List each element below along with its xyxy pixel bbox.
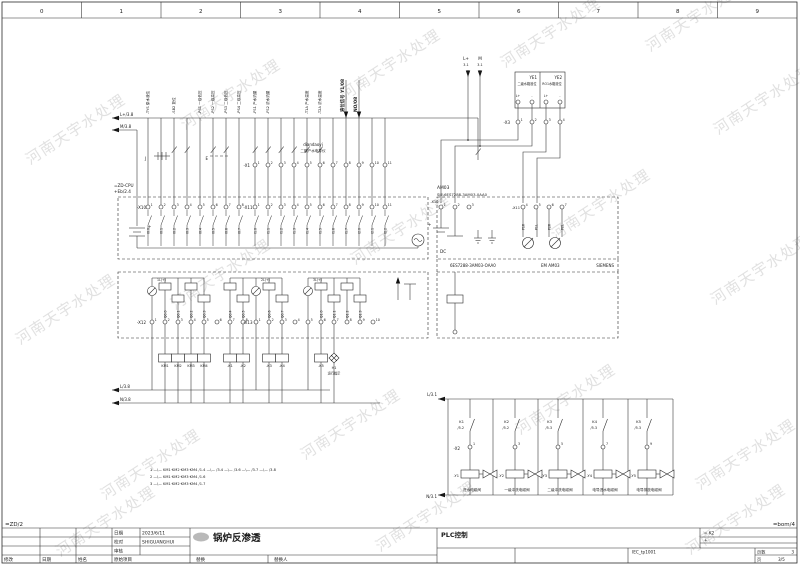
terminal-circle xyxy=(306,320,310,324)
watermark-text: 河南天宇水处理 xyxy=(497,0,604,71)
am03-caption-model: EM AM03 xyxy=(541,263,560,268)
terminal-number: 9 xyxy=(650,442,652,446)
terminal-circle xyxy=(318,163,322,167)
am03-part-number: SIE.6ES7288-3AM03-0AA0 xyxy=(437,192,488,197)
terminal-circle xyxy=(279,163,283,167)
page-label: 页 xyxy=(757,557,761,563)
note-line: 1 —\— KM1·KM2·KM3·KM4 /1.4 —\— /3.4 —\— … xyxy=(150,468,277,472)
coil-tag: -K5 xyxy=(318,364,324,368)
terminal-number: 3 xyxy=(285,318,287,322)
vertical-label: I0.1 xyxy=(160,228,164,234)
terminal-circle xyxy=(319,320,323,324)
vertical-label: -PS1 一级低压 xyxy=(197,90,202,114)
terminal-strip-x3: 1234 xyxy=(516,118,565,124)
bus-bl-n-label: N/3.8 xyxy=(120,397,131,402)
terminal-circle xyxy=(558,120,562,124)
vertical-label: -PS2 一级高压 xyxy=(210,90,215,114)
terminal-circle xyxy=(383,163,387,167)
terminal-number: 1 xyxy=(259,318,261,322)
terminal-circle xyxy=(467,205,471,209)
contact-ref: /5.3 xyxy=(545,426,552,430)
terminal-circle xyxy=(253,163,257,167)
terminal-number: 4 xyxy=(190,203,192,207)
terminal-number: 4 xyxy=(194,318,196,322)
k12-coils: -K1-K2 xyxy=(224,354,250,368)
vertical-label: -T2A 浓水温度 xyxy=(317,90,322,114)
terminal-circle xyxy=(371,320,375,324)
cpu-input-signals-2: I1.0I1.1I1.2I1.3I1.4I1.5I1.6I1.7I2.0I2.1… xyxy=(254,228,388,234)
terminal-circle xyxy=(198,205,202,209)
component-e-label: E xyxy=(205,156,208,161)
coil-symbol xyxy=(315,354,328,362)
drawing-title: 锅炉反渗透 xyxy=(213,532,261,544)
terminal-number: 5 xyxy=(310,203,312,207)
watermark-layer: 河南天宇水处理 河南天宇水处理 河南天宇水处理 河南天宇水处理 河南天宇水处理 … xyxy=(12,0,800,560)
terminal-circle xyxy=(560,205,564,209)
terminal-number: 5 xyxy=(311,318,313,322)
watermark-text: 河南天宇水处理 xyxy=(710,60,800,138)
vertical-label: I0.4 xyxy=(199,228,203,234)
vertical-label: -PS4 二级高压 xyxy=(236,90,241,114)
terminal-number: 2 xyxy=(271,161,273,165)
signal-ref-1: 液位信号 Y1/08 xyxy=(339,79,346,112)
vertical-label: -PS3 二级低压 xyxy=(223,90,228,114)
valve-tag: -Y2 xyxy=(499,474,504,478)
common-3l: 3L(+) xyxy=(313,278,322,282)
ground-symbols xyxy=(474,238,496,243)
terminal-circle xyxy=(357,163,361,167)
terminal-circle xyxy=(172,205,176,209)
watermark-text: 河南天宇水处理 xyxy=(22,90,129,168)
coil-tag: KM3 xyxy=(187,364,194,368)
feed-m-ref: 3.1 xyxy=(477,63,482,67)
cpu-ref: =ZD-CPU xyxy=(114,183,134,188)
terminal-number: 8 xyxy=(349,203,351,207)
terminal-strip-x11-tag: -X11 xyxy=(243,205,253,210)
terminal-number: 6 xyxy=(324,318,326,322)
signal-ref-2: NO/08 xyxy=(353,97,359,112)
terminal-circle xyxy=(224,205,228,209)
watermark-text: 河南天宇水处理 xyxy=(12,270,119,348)
row-label: 2 xyxy=(199,9,203,15)
output-box: 1L(+) 2L(+) 3L(+) Q0.0 xyxy=(118,272,428,338)
contact-tag: K2 xyxy=(504,419,509,424)
terminal-number: 8 xyxy=(349,161,351,165)
vertical-label: -T1A 产水温度 xyxy=(304,90,309,114)
valve-tag: -Y4 xyxy=(587,474,593,478)
terminal-number: 6 xyxy=(216,203,218,207)
terminal-number: 5 xyxy=(539,203,541,207)
terminal-circle xyxy=(547,205,551,209)
terminal-number: 6 xyxy=(220,318,222,322)
row-label: 0 xyxy=(40,9,44,15)
cross-reference-notes: 1 —\— KM1·KM2·KM3·KM4 /1.4 —\— /3.4 —\— … xyxy=(150,468,277,486)
vertical-label: I0.3 xyxy=(186,228,190,234)
terminal-circle xyxy=(534,205,538,209)
date-label: 日期 xyxy=(114,531,123,537)
km-coils: KM1KM2KM3KM4 xyxy=(159,354,211,368)
terminal-circle xyxy=(211,205,215,209)
terminal-strip-x1-tag: -X1 xyxy=(243,163,250,168)
coil-tag: KM1 xyxy=(161,364,168,368)
vertical-label: -FS1 产水流量 xyxy=(252,90,257,114)
terminal-number: 1 xyxy=(155,318,157,322)
bus-l-label: L+/3.8 xyxy=(120,112,134,117)
terminal-circle xyxy=(253,205,257,209)
h1-tag: H1 xyxy=(332,366,337,370)
row-label: 6 xyxy=(517,9,521,15)
terminal-circle xyxy=(318,205,322,209)
terminal-circle xyxy=(358,320,362,324)
battery-plus: + xyxy=(148,224,151,229)
terminal-circle xyxy=(163,320,167,324)
terminal-number: 3 xyxy=(284,203,286,207)
terminal-number: 1 xyxy=(444,203,446,207)
terminal-number: 11 xyxy=(388,161,392,165)
coil-symbol xyxy=(263,354,276,362)
terminal-number: 3 xyxy=(549,118,551,122)
terminal-number: 2 xyxy=(458,203,460,207)
terminal-number: 9 xyxy=(363,318,365,322)
valve-tag: -Y3 xyxy=(542,474,547,478)
terminal-number: 1 xyxy=(258,161,260,165)
valve-desc: 电导排放电磁阀 xyxy=(636,487,662,492)
terminal-circle xyxy=(305,205,309,209)
replace-by-label: 替换人 xyxy=(274,556,288,563)
am03-plus: + xyxy=(428,222,431,227)
coil-tag: KM2 xyxy=(174,364,181,368)
vertical-label: I1.0 xyxy=(254,228,258,234)
vertical-label: I2.1 xyxy=(371,228,375,234)
ye1-desc: 二级水箱液位 xyxy=(517,81,537,86)
common-1l: 1L(+) xyxy=(157,278,166,282)
cpu-location: +Eb/2.4 xyxy=(114,189,131,194)
terminal-number: 6 xyxy=(323,161,325,165)
terminal-number: 1 xyxy=(258,203,260,207)
contact-tag: K1 xyxy=(459,419,464,424)
instrument-circuit: L+ 3.1 M 3.1 YE1 二级水箱液位 YE2 RO1水箱液位 L+ -… xyxy=(441,56,565,203)
pages-value: 3 xyxy=(791,550,794,555)
vertical-label: P1L xyxy=(535,224,539,230)
terminal-strip-x10: 12345678 xyxy=(146,203,244,209)
k5-coil: -K5 xyxy=(315,354,328,368)
vertical-label: P2L xyxy=(561,224,565,230)
row-label: 7 xyxy=(596,9,600,15)
component-j-label: J xyxy=(144,156,146,161)
terminal-circle xyxy=(279,205,283,209)
terminal-circle xyxy=(345,320,349,324)
terminal-number: 4 xyxy=(297,161,299,165)
audit-label: 审核 xyxy=(114,548,123,555)
vertical-label: -TYS 原水液位 xyxy=(145,90,150,114)
contact-ref: /5.2 xyxy=(502,426,509,430)
vertical-label: I1.5 xyxy=(319,228,323,234)
row-label: 9 xyxy=(755,9,759,15)
terminal-strip-x2-tag: -X2 xyxy=(453,446,460,451)
modify-label: 修改 xyxy=(4,556,13,563)
valve-desc: 二级冲洗电磁阀 xyxy=(547,487,573,492)
row-label: 3 xyxy=(278,9,282,15)
coil-tag: -K2 xyxy=(240,364,246,368)
terminal-number: 3 xyxy=(284,161,286,165)
note-line: 2 —\— KM1·KM2·KM3·KM4 /1.6 xyxy=(150,475,206,479)
terminal-number: 7 xyxy=(336,161,338,165)
terminal-number: 1 xyxy=(521,118,523,122)
coil-symbol xyxy=(185,354,198,362)
replace-label: 替换 xyxy=(196,556,205,563)
terminal-number: 5 xyxy=(310,161,312,165)
terminal-number: 6 xyxy=(552,203,554,207)
terminal-strip-x13-tag: -X13 xyxy=(243,320,253,325)
terminal-number: 5 xyxy=(203,203,205,207)
terminal-number: 2 xyxy=(271,203,273,207)
name-label: 姓名 xyxy=(78,556,87,563)
terminal-number: 5 xyxy=(207,318,209,322)
conductivity-meter-name: diandaoyi xyxy=(303,142,323,147)
terminal-number: 1 xyxy=(473,442,475,446)
vertical-label: I1.4 xyxy=(306,228,310,234)
row-label: 8 xyxy=(676,9,680,15)
terminal-circle xyxy=(292,205,296,209)
terminal-circle xyxy=(237,205,241,209)
terminal-circle xyxy=(292,163,296,167)
drawing-subtitle: PLC控制 xyxy=(441,530,468,539)
coil-symbol xyxy=(159,354,172,362)
terminal-number: 8 xyxy=(350,318,352,322)
terminal-number: 3 xyxy=(518,442,520,446)
valve-desc: 电导进水电磁阀 xyxy=(592,487,618,492)
valve-branch: K4 /5.3 7 -Y4 电导进水电磁阀 xyxy=(587,399,630,495)
terminal-circle xyxy=(332,320,336,324)
contact-tag: K5 xyxy=(636,419,641,424)
k34-coils: -K3-K4 xyxy=(263,354,289,368)
pages-label: 页数 xyxy=(757,549,766,556)
terminal-circle xyxy=(439,205,443,209)
watermark-text: 河南天宇水处理 xyxy=(682,480,789,558)
iec-code: IEC_tp1001 xyxy=(632,550,656,555)
vertical-label: I0.6 xyxy=(225,228,229,234)
date-value: 2023/6/11 xyxy=(142,531,165,537)
vertical-label: -SB2 复位 xyxy=(171,97,176,114)
terminal-circle xyxy=(267,320,271,324)
am03-x11-tag: -X11 xyxy=(512,206,520,210)
h1-desc: 运行指示 xyxy=(328,371,341,376)
contact-tag: K3 xyxy=(547,419,552,424)
terminal-number: 2 xyxy=(168,318,170,322)
terminal-number: 3 xyxy=(177,203,179,207)
location-plus: + xyxy=(704,538,708,543)
terminal-circle xyxy=(544,120,548,124)
watermark-text: 河南天宇水处理 xyxy=(337,25,444,103)
watermark-text: 河南天宇水处理 xyxy=(297,385,404,463)
terminal-number: 10 xyxy=(375,203,379,207)
ye2-plus: L+ xyxy=(544,94,549,98)
terminal-number: 7 xyxy=(229,203,231,207)
feed-l-ref: 3.1 xyxy=(463,63,468,67)
terminal-circle xyxy=(331,163,335,167)
contact-tag: K4 xyxy=(592,419,597,424)
am03-caption-brand: SIEMENS xyxy=(596,263,614,268)
terminal-number: 4 xyxy=(526,203,528,207)
terminal-number: 7 xyxy=(565,203,567,207)
terminal-circle xyxy=(280,320,284,324)
feed-l-label: L+ xyxy=(463,56,469,61)
ye1-minus: - xyxy=(531,94,532,98)
am03-name: AM03 xyxy=(437,185,450,191)
coil-symbol xyxy=(172,354,185,362)
am03-wiring xyxy=(441,209,562,238)
sheet-ref-bom: =bom/4 xyxy=(773,522,796,528)
valve-desc: 进水电磁阀 xyxy=(463,487,481,492)
contact-ref: /5.3 xyxy=(590,426,597,430)
terminal-number: 2 xyxy=(272,318,274,322)
terminal-number: 7 xyxy=(336,203,338,207)
am03-dc-battery xyxy=(433,228,463,236)
terminal-circle xyxy=(516,120,520,124)
common-2l: 2L(+) xyxy=(261,278,270,282)
terminal-strip-x11: 1234567891011 xyxy=(253,203,392,209)
relay-row: KM1KM2KM3KM4 -K1-K2 -K3-K4 -K5 H1 运行指示 L… xyxy=(112,324,380,405)
vertical-label: I0.7 xyxy=(238,228,242,234)
terminal-strip-x1: 1234567891011 xyxy=(253,161,392,167)
bus-br-n-label: N/3.1 xyxy=(426,494,437,499)
watermark-text: 河南天宇水处理 xyxy=(692,415,799,493)
terminal-circle xyxy=(370,205,374,209)
terminal-number: 4 xyxy=(563,118,565,122)
watermark-text: 河南天宇水处理 xyxy=(547,165,654,243)
terminal-circle xyxy=(293,320,297,324)
terminal-circle xyxy=(189,320,193,324)
terminal-strip-x3-tag: -X3 xyxy=(503,120,510,125)
terminal-number: 9 xyxy=(362,203,364,207)
orig-project-label: 原始项目 xyxy=(114,556,132,563)
vertical-label: I0.2 xyxy=(173,228,177,234)
vertical-label: I2.2 xyxy=(384,228,388,234)
terminal-number: 9 xyxy=(362,161,364,165)
ye2-minus: - xyxy=(559,94,560,98)
terminal-circle xyxy=(521,205,525,209)
terminal-number: 2 xyxy=(164,203,166,207)
terminal-circle xyxy=(331,205,335,209)
vertical-label: I1.7 xyxy=(345,228,349,234)
bus-bl-l-label: L/3.8 xyxy=(120,384,130,389)
coil-symbol xyxy=(224,354,237,362)
terminal-number: 6 xyxy=(323,203,325,207)
coil-tag: -K3 xyxy=(266,364,272,368)
terminal-circle xyxy=(370,163,374,167)
terminal-number: 3 xyxy=(181,318,183,322)
location-k2: = K2 xyxy=(704,531,715,536)
vertical-label: I0.5 xyxy=(212,228,216,234)
coil-symbol xyxy=(237,354,250,362)
terminal-number: 2 xyxy=(535,118,537,122)
terminal-number: 7 xyxy=(606,442,608,446)
coil-symbol xyxy=(198,354,211,362)
terminal-number: 11 xyxy=(388,203,392,207)
terminal-circle xyxy=(176,320,180,324)
valve-tag: -Y1 xyxy=(454,474,459,478)
am03-dc-label: DC xyxy=(440,249,446,254)
sheet-ref-zd: =ZD/2 xyxy=(5,522,23,528)
terminal-circle xyxy=(254,320,258,324)
terminal-circle xyxy=(266,205,270,209)
conductivity-meter-desc: 二期产水电导仪 xyxy=(300,148,326,153)
am03-x10-tag: -X10 xyxy=(430,200,439,204)
coil-tag: KM4 xyxy=(200,364,207,368)
terminal-circle xyxy=(453,205,457,209)
terminal-circle xyxy=(215,320,219,324)
check-label: 校对 xyxy=(114,539,123,546)
watermark-text: 河南天宇水处理 xyxy=(642,0,749,55)
am03-terminals-2: 4567 xyxy=(521,203,567,209)
vertical-label: -FS2 浓水流量 xyxy=(265,90,270,114)
feed-m-label: M xyxy=(478,56,482,61)
check-value: SHIGUANGHUI xyxy=(142,540,174,546)
terminal-circle xyxy=(159,205,163,209)
am03-lower-outline xyxy=(437,272,618,338)
terminal-circle xyxy=(383,205,387,209)
terminal-number: 5 xyxy=(561,442,563,446)
drawing-page: 河南天宇水处理 河南天宇水处理 河南天宇水处理 河南天宇水处理 河南天宇水处理 … xyxy=(0,0,800,565)
terminal-number: 7 xyxy=(233,318,235,322)
terminal-circle xyxy=(357,205,361,209)
terminal-circle xyxy=(266,163,270,167)
coil-symbol xyxy=(276,354,289,362)
terminal-number: 10 xyxy=(376,318,380,322)
vertical-label: I1.2 xyxy=(280,228,284,234)
terminal-number: 4 xyxy=(298,318,300,322)
contact-ref: /5.2 xyxy=(457,426,464,430)
component-j-symbol xyxy=(154,152,170,160)
coil-tag: -K1 xyxy=(227,364,233,368)
vertical-label: I1.1 xyxy=(267,228,271,234)
cpu-input-signals-1: I0.0I0.1I0.2I0.3I0.4I0.5I0.6I0.7 xyxy=(147,228,242,234)
terminal-circle xyxy=(202,320,206,324)
schematic-canvas: 河南天宇水处理 河南天宇水处理 河南天宇水处理 河南天宇水处理 河南天宇水处理 … xyxy=(0,0,800,565)
vertical-label: I2.0 xyxy=(358,228,362,234)
coil-tag: -K4 xyxy=(279,364,285,368)
ye1-plus: L+ xyxy=(516,94,521,98)
terminal-circle xyxy=(228,320,232,324)
ye2-desc: RO1水箱液位 xyxy=(542,81,562,86)
date2-label: 日期 xyxy=(42,557,51,563)
am03-caption-part: 6ES7288-3AM03-OAA0 xyxy=(450,263,496,268)
terminal-circle xyxy=(344,205,348,209)
vertical-label: P1R xyxy=(522,223,526,230)
terminal-number: 1 xyxy=(151,203,153,207)
bus-m-label: M/3.8 xyxy=(120,124,132,129)
vertical-label: I1.6 xyxy=(332,228,336,234)
terminal-circle xyxy=(146,205,150,209)
terminal-circle xyxy=(530,120,534,124)
terminal-strip-x12-tag: -X12 xyxy=(137,320,147,325)
watermark-text: 河南天宇水处理 xyxy=(707,230,800,308)
ye2-tag: YE2 xyxy=(553,75,562,80)
row-label: 4 xyxy=(358,9,362,15)
terminal-circle xyxy=(185,205,189,209)
row-label: 1 xyxy=(119,9,123,15)
valve-branch: K5 /5.3 9 -Y5 电导排放电磁阀 xyxy=(631,399,674,495)
row-label: 5 xyxy=(437,9,441,15)
bus-br-l-label: L/3.1 xyxy=(427,392,437,397)
terminal-circle xyxy=(305,163,309,167)
terminal-number: 10 xyxy=(375,161,379,165)
vertical-label: I1.3 xyxy=(293,228,297,234)
terminal-strip-x10-tag: -X10 xyxy=(137,205,147,210)
contact-ref: /5.3 xyxy=(634,426,641,430)
valve-desc: 一级冲洗电磁阀 xyxy=(504,487,530,492)
ye1-tag: YE1 xyxy=(528,75,537,80)
